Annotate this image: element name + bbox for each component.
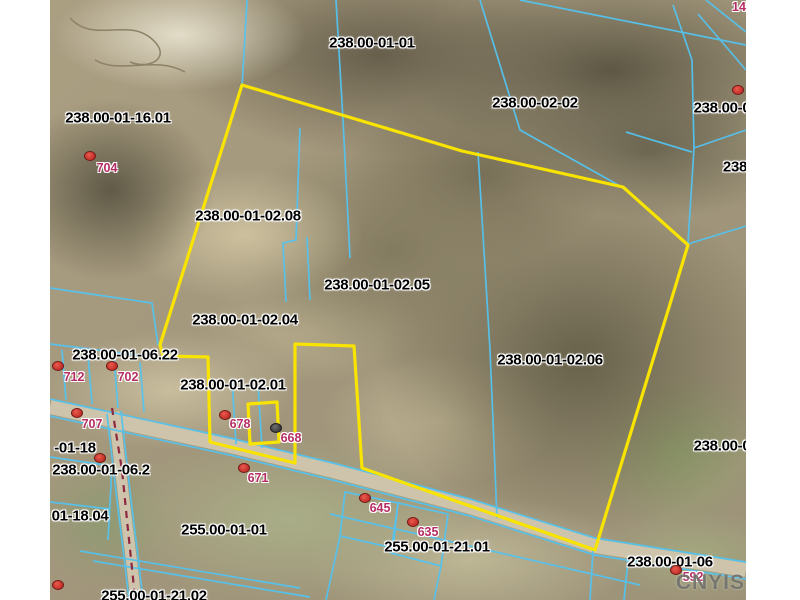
address-label: 671 — [248, 471, 269, 485]
parcel-label: 238.00-01-02.04 — [192, 312, 298, 329]
address-dot — [732, 85, 744, 95]
address-label: 635 — [418, 525, 439, 539]
parcel-label: 238.00-01-06.2 — [52, 462, 150, 479]
parcel-boundary-lines — [50, 0, 746, 600]
parcel-label: 238.00-01-02.08 — [195, 208, 301, 225]
address-dot — [106, 361, 118, 371]
address-label: 702 — [118, 370, 139, 384]
parcel-label: 238.00-0 — [694, 438, 746, 455]
address-label: 712 — [64, 370, 85, 384]
address-dot — [94, 453, 106, 463]
parcel-label: 238.00-02-02 — [492, 95, 578, 112]
parcel-label: 238 — [723, 159, 746, 176]
address-dot — [52, 361, 64, 371]
parcel-label: 238.00-01-02.01 — [180, 377, 286, 394]
parcel-label: 238.00-01-02.05 — [324, 277, 430, 294]
parcel-label: 255.00-01-21.01 — [384, 539, 490, 556]
dirt-trails — [70, 18, 185, 72]
address-label: 707 — [82, 417, 103, 431]
address-label: 14 — [732, 0, 746, 14]
parcel-label: 238.00-01-16.01 — [65, 110, 171, 127]
map-line-overlay — [50, 0, 746, 600]
address-label: 704 — [97, 161, 118, 175]
address-dot — [84, 151, 96, 161]
address-dot — [52, 580, 64, 590]
parcel-label: 238.00-02 — [694, 100, 746, 117]
parcel-label: 238.00-01-06.22 — [72, 347, 178, 364]
address-label: 645 — [370, 501, 391, 515]
address-label: 678 — [230, 417, 251, 431]
address-label: 668 — [281, 431, 302, 445]
parcel-label: -01-18 — [54, 440, 96, 457]
parcel-label: 255.00-01-21.02 — [101, 588, 207, 600]
aerial-parcel-map[interactable]: 238.00-01-01238.00-02-02238.00-02238238.… — [50, 0, 746, 600]
watermark: CNYIS — [676, 571, 745, 595]
parcel-label: 255.00-01-01 — [181, 522, 267, 539]
parcel-label: 01-18.04 — [52, 508, 109, 525]
parcel-label: 238.00-01-02.06 — [497, 352, 603, 369]
parcel-label: 238.00-01-01 — [329, 35, 415, 52]
